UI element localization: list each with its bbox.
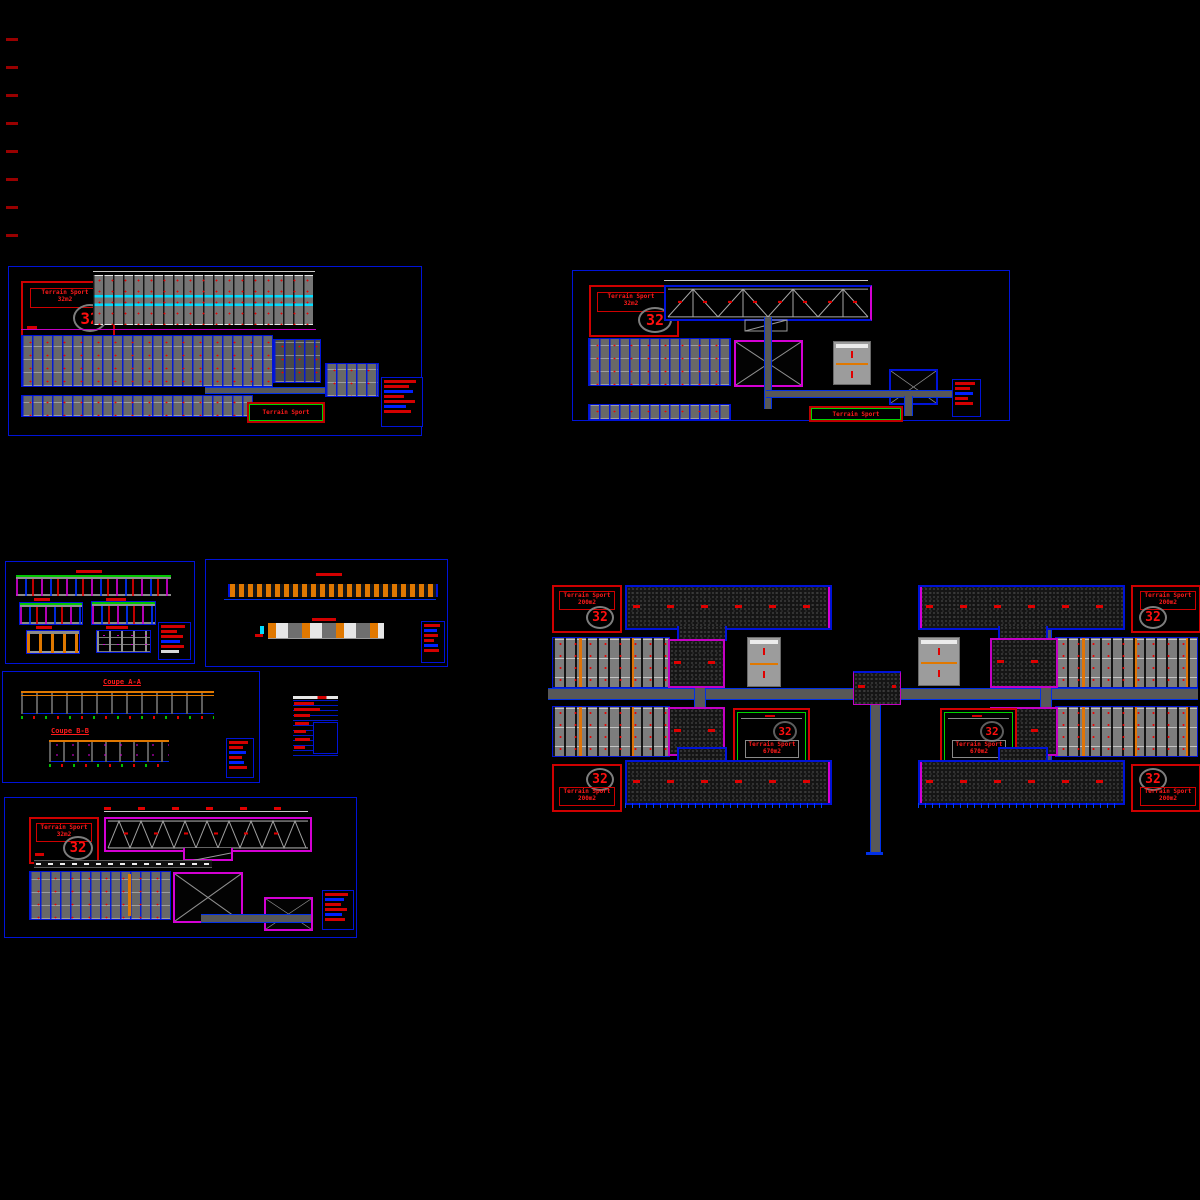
red-dim-row <box>633 605 823 608</box>
note-row <box>229 761 244 764</box>
note-row <box>161 635 183 638</box>
title-line2: 200m2 <box>578 599 596 606</box>
red-dim-row <box>674 661 719 664</box>
facade-title <box>312 618 336 621</box>
legend-header <box>293 696 338 699</box>
note-row <box>955 392 973 395</box>
wall-dashes <box>36 863 210 865</box>
dimension-line <box>93 271 315 272</box>
court-net-line <box>921 662 957 664</box>
section-a-label: Coupe A-A <box>103 678 141 686</box>
magenta-accent <box>828 587 830 628</box>
notes-title-block[interactable] <box>381 377 423 427</box>
title-line2: 32m2 <box>624 300 638 307</box>
note-row <box>384 390 413 393</box>
field-line1: Terrain Sport <box>956 741 1003 748</box>
legend-entry <box>294 730 306 733</box>
residential-strip[interactable] <box>1055 706 1198 757</box>
section-b-drawing[interactable] <box>49 740 169 762</box>
note-row <box>325 908 347 911</box>
field-inner-line <box>948 718 1009 719</box>
sheet-truss-plan[interactable]: Terrain Sport 32m2 32 <box>572 270 1010 421</box>
court-center-mark <box>763 671 765 678</box>
field-number-circle: 32 <box>980 721 1004 742</box>
title-line2: 200m2 <box>1159 795 1177 802</box>
title-text-box: Terrain Sport 200m2 <box>1140 787 1196 806</box>
note-row <box>384 405 406 408</box>
stray-text-mark <box>6 94 18 97</box>
legend-entry <box>294 714 310 717</box>
plot-number-circle: 32 <box>1139 606 1167 629</box>
path-vertical <box>904 396 913 416</box>
central-block[interactable] <box>853 671 901 705</box>
stray-text-mark <box>6 66 18 69</box>
court-center-mark <box>938 648 940 655</box>
red-dim-row <box>858 685 896 688</box>
road-vertical-center <box>870 702 881 854</box>
note-row <box>424 644 438 647</box>
corner-title-block-bl[interactable]: 32 Terrain Sport 200m2 <box>552 764 622 812</box>
red-annotation <box>255 634 263 637</box>
lower-strip-plan[interactable] <box>21 395 253 417</box>
legend-detail-box <box>313 722 338 754</box>
road-end-mark <box>866 852 883 855</box>
magenta-accent <box>920 762 922 803</box>
stray-text-mark <box>6 178 18 181</box>
truss-lines <box>666 287 870 319</box>
sports-court[interactable] <box>747 637 781 687</box>
section-b-footing-dots <box>49 764 169 767</box>
note-row <box>424 634 438 637</box>
red-annotation <box>765 715 775 717</box>
red-dim-row <box>926 780 1116 783</box>
red-dim-row <box>997 660 1051 663</box>
red-dim-row <box>633 780 823 783</box>
legend-entry <box>294 708 320 711</box>
note-row <box>325 903 341 906</box>
red-annotation <box>972 715 982 717</box>
court-end-band <box>836 344 868 348</box>
note-row <box>161 650 179 653</box>
plot-number-circle: 32 <box>63 836 93 860</box>
legend-entry <box>294 702 314 705</box>
note-row <box>424 649 439 652</box>
elevation-title <box>36 626 52 629</box>
stray-marks-column <box>6 38 20 248</box>
legend-entry <box>295 738 310 741</box>
truss-roof-plan[interactable] <box>664 285 872 321</box>
title-line2: 32m2 <box>58 296 72 303</box>
court-net-line <box>750 663 778 665</box>
title-line1: Terrain Sport <box>1145 788 1192 795</box>
corner-title-block-tl[interactable]: Terrain Sport 200m2 32 <box>552 585 622 633</box>
note-row <box>325 918 345 921</box>
court-center-mark <box>851 351 853 358</box>
note-row <box>384 385 409 388</box>
legend-entry <box>295 722 309 725</box>
title-line1: Terrain Sport <box>608 293 655 300</box>
sheet-elevations[interactable] <box>5 561 195 664</box>
sports-court[interactable] <box>833 341 871 385</box>
service-block[interactable] <box>668 639 725 688</box>
court-end-band <box>921 640 957 644</box>
note-row <box>161 625 185 628</box>
note-row <box>161 630 177 633</box>
stray-text-mark <box>6 234 18 237</box>
note-row <box>955 402 973 405</box>
dimension-tick-row <box>918 803 1121 808</box>
sport-area-label-box[interactable]: Terrain Sport <box>249 404 323 421</box>
annex-plan[interactable] <box>273 339 321 383</box>
note-row <box>424 639 434 642</box>
red-dim-row <box>674 729 719 732</box>
sport-area-label: Terrain Sport <box>833 411 880 418</box>
sport-area-label: Terrain Sport <box>263 409 310 416</box>
building-block-bottom-left[interactable] <box>625 760 832 805</box>
residential-strip[interactable] <box>1055 637 1198 688</box>
section-a-drawing[interactable] <box>21 691 214 714</box>
path-horizontal <box>766 390 953 398</box>
residential-strip[interactable] <box>552 706 670 757</box>
portico-elevation[interactable] <box>26 630 80 654</box>
field-text-box: Terrain Sport 670m2 <box>745 740 799 758</box>
note-row <box>229 756 242 759</box>
notes-title-block[interactable] <box>226 738 254 778</box>
note-row <box>229 766 247 769</box>
sheet-roof-framing[interactable]: Terrain Sport 32m2 32 <box>4 797 357 938</box>
main-elevation[interactable] <box>16 575 171 596</box>
building-block-bottom-right[interactable] <box>918 760 1125 805</box>
court-center-mark <box>763 648 765 655</box>
note-row <box>325 913 342 916</box>
corner-title-block-tr[interactable]: Terrain Sport 200m2 32 <box>1131 585 1200 633</box>
residential-strip[interactable] <box>552 637 670 688</box>
field-line2: 670m2 <box>970 748 988 755</box>
orange-wall <box>128 874 131 916</box>
lower-strip-plan[interactable] <box>588 404 731 420</box>
title-line1: Terrain Sport <box>1145 592 1192 599</box>
sheet-facade[interactable] <box>205 559 448 667</box>
colonnade-row[interactable] <box>228 584 438 597</box>
field-inner-line <box>741 718 802 719</box>
dimension-line <box>664 280 868 281</box>
title-line1: Terrain Sport <box>564 788 611 795</box>
dimension-marks <box>104 807 308 810</box>
corner-title-block-br[interactable]: 32 Terrain Sport 200m2 <box>1131 764 1200 812</box>
title-line2: 200m2 <box>578 795 596 802</box>
note-row <box>325 898 344 901</box>
stray-text-mark <box>6 206 18 209</box>
note-row <box>384 410 411 413</box>
small-hall-roof[interactable] <box>889 369 938 405</box>
note-row <box>955 387 970 390</box>
note-row <box>161 640 180 643</box>
truss-lines <box>106 819 310 850</box>
notes-title-block[interactable] <box>158 622 191 660</box>
baseline <box>224 599 436 600</box>
red-dim-row <box>926 605 1116 608</box>
dimension-line <box>104 811 308 812</box>
floor-plan[interactable] <box>29 871 171 920</box>
sheet-floorplan[interactable]: Terrain Sport 32m2 32 Terrain Sport <box>8 266 422 436</box>
stray-text-mark <box>6 150 18 153</box>
site-plan[interactable]: Terrain Sport 200m2 32 32 Terrain Sport … <box>548 580 1198 865</box>
field-line2: 670m2 <box>763 748 781 755</box>
court-end-band <box>750 640 778 644</box>
facade-title <box>316 573 342 576</box>
building-block-top-left[interactable] <box>625 585 832 630</box>
note-row <box>384 380 416 383</box>
elevation-title <box>34 598 50 601</box>
plot-number-circle: 32 <box>586 606 614 629</box>
notes-title-block[interactable] <box>952 379 981 417</box>
legend-entry <box>294 746 305 749</box>
stray-text-mark <box>6 38 18 41</box>
note-row <box>161 645 184 648</box>
dorm-plan[interactable] <box>588 338 731 386</box>
building-block-top-right[interactable] <box>918 585 1125 630</box>
entrance-elevation[interactable] <box>268 623 384 639</box>
side-elevation-left[interactable] <box>19 602 83 625</box>
court-center-mark <box>938 670 940 677</box>
note-row <box>325 893 348 896</box>
note-row <box>229 751 246 754</box>
sheet-title-block[interactable]: Terrain Sport 32m2 32 <box>29 817 99 864</box>
notes-legend[interactable] <box>293 696 338 756</box>
title-line1: Terrain Sport <box>564 592 611 599</box>
sport-area-label-box[interactable]: Terrain Sport <box>811 408 901 420</box>
elevation-title <box>106 626 128 629</box>
cad-canvas: { "document": { "kind": "CAD drawing set… <box>0 0 1200 1200</box>
figure-mark <box>260 626 264 634</box>
apartment-strip-plan[interactable] <box>93 275 313 325</box>
path <box>205 387 325 394</box>
service-block[interactable] <box>990 638 1058 688</box>
main-floor-plan[interactable] <box>21 335 273 387</box>
elevation-title <box>76 570 102 573</box>
note-row <box>955 397 968 400</box>
stray-text-mark <box>6 122 18 125</box>
side-elevation-right[interactable] <box>91 601 156 625</box>
note-row <box>424 624 440 627</box>
magenta-accent <box>828 762 830 803</box>
section-b-label: Coupe B-B <box>51 727 89 735</box>
note-row <box>424 629 437 632</box>
title-line2: 200m2 <box>1159 599 1177 606</box>
note-row <box>384 400 415 403</box>
title-line1: Terrain Sport <box>42 289 89 296</box>
field-line1: Terrain Sport <box>749 741 796 748</box>
note-row <box>229 741 248 744</box>
sheet-sections[interactable]: Coupe A-A Coupe B-B <box>2 671 260 783</box>
truss-roof-plan[interactable] <box>104 817 312 852</box>
dimension-tick-row <box>625 803 828 808</box>
section-a-footing-dots <box>21 716 214 719</box>
path-horizontal <box>201 914 311 923</box>
title-line1: Terrain Sport <box>41 824 88 831</box>
note-row <box>229 746 243 749</box>
note-row <box>955 382 975 385</box>
fence-elevation[interactable] <box>96 630 151 653</box>
outbuilding-plan[interactable] <box>325 363 379 397</box>
title-text-box: Terrain Sport 200m2 <box>559 787 615 806</box>
field-number-circle: 32 <box>773 721 797 742</box>
magenta-dim-line <box>21 329 316 330</box>
notes-title-block[interactable] <box>421 621 445 663</box>
magenta-accent <box>920 587 922 628</box>
sport-field[interactable]: 32 Terrain Sport 670m2 <box>733 708 810 768</box>
sports-court[interactable] <box>918 637 960 686</box>
court-center-mark <box>851 371 853 378</box>
red-annotation <box>35 853 44 856</box>
court-net-line <box>836 363 868 365</box>
wall-band <box>34 860 212 868</box>
notes-title-block[interactable] <box>322 890 354 930</box>
note-row <box>384 395 404 398</box>
